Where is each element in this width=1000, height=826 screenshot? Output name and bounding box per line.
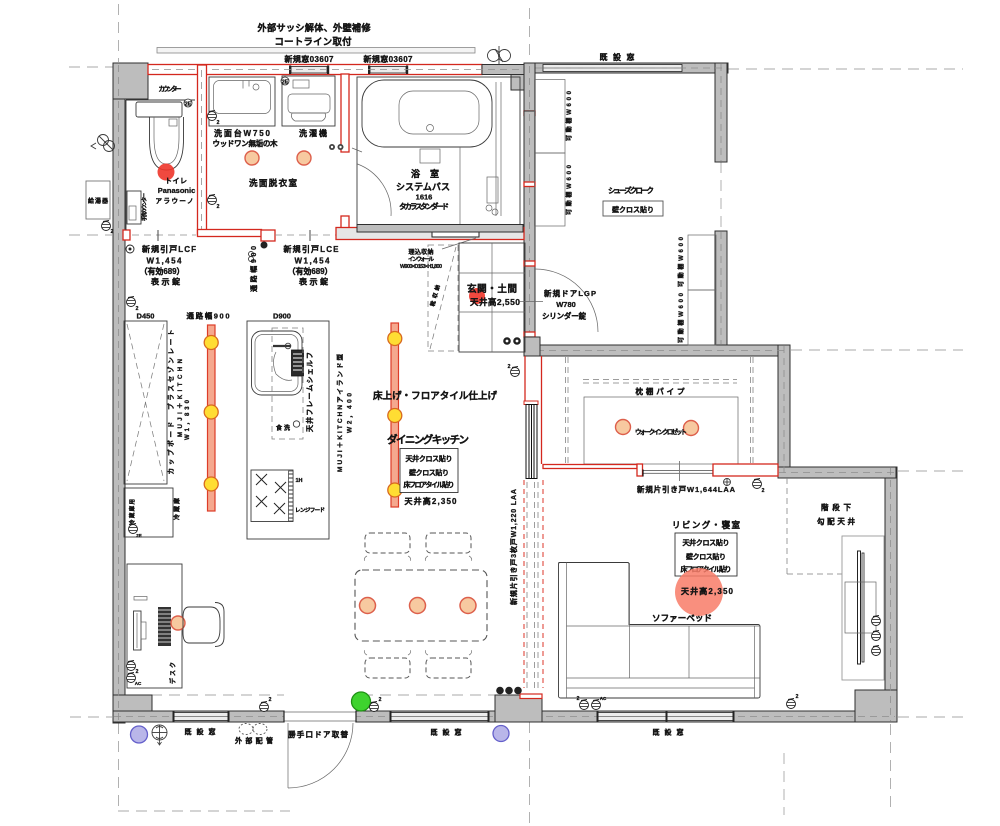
svg-text:（有効689）: （有効689）	[288, 266, 333, 276]
svg-text:W1,454: W1,454	[147, 257, 183, 266]
svg-text:D900: D900	[273, 312, 291, 321]
svg-text:コートライン取付: コートライン取付	[275, 36, 353, 47]
svg-text:アラウーノ: アラウーノ	[156, 197, 194, 205]
svg-text:W900×D153×H1,800: W900×D153×H1,800	[400, 264, 442, 270]
svg-text:既設窓: 既設窓	[185, 727, 216, 736]
svg-text:外部サッシ解体、外壁補修: 外部サッシ解体、外壁補修	[257, 22, 372, 33]
svg-text:2: 2	[379, 697, 382, 703]
svg-text:MUJI＋KITCHN: MUJI＋KITCHN	[177, 359, 184, 437]
svg-text:新規片引き戸W1,644LAA: 新規片引き戸W1,644LAA	[637, 484, 736, 494]
svg-text:2: 2	[796, 694, 799, 700]
svg-text:ウォークインクロゼット: ウォークインクロゼット	[635, 427, 687, 436]
svg-text:冷蔵庫: 冷蔵庫	[173, 498, 181, 520]
svg-text:2: 2	[577, 696, 580, 702]
svg-text:新規引戸LCE: 新規引戸LCE	[284, 244, 340, 254]
svg-text:新規窓03607: 新規窓03607	[285, 54, 335, 64]
svg-text:D450: D450	[137, 312, 155, 321]
svg-text:2: 2	[269, 697, 272, 703]
svg-text:AC: AC	[135, 681, 142, 686]
svg-text:ソファーベッド: ソファーベッド	[652, 613, 712, 623]
svg-text:2: 2	[217, 120, 220, 126]
svg-text:2: 2	[217, 204, 220, 210]
svg-text:天井クロス貼り: 天井クロス貼り	[683, 538, 730, 547]
svg-text:インウォール: インウォール	[408, 255, 434, 263]
svg-text:既設窓: 既設窓	[431, 728, 462, 737]
svg-text:レンジフード: レンジフード	[295, 507, 325, 514]
svg-text:天井高2,350: 天井高2,350	[681, 586, 734, 596]
svg-text:表示錠: 表示錠	[150, 277, 181, 287]
svg-text:1616: 1616	[416, 193, 433, 202]
svg-text:床フロアタイル貼り: 床フロアタイル貼り	[404, 480, 455, 489]
svg-text:2E: 2E	[185, 102, 192, 108]
svg-text:新規片引き戸3枚戸W1,220 LAA: 新規片引き戸3枚戸W1,220 LAA	[509, 489, 518, 605]
svg-text:AC: AC	[600, 696, 607, 701]
svg-text:通路幅900: 通路幅900	[187, 311, 230, 321]
svg-text:通路幅900: 通路幅900	[249, 246, 258, 292]
svg-text:タカラスタンダード: タカラスタンダード	[399, 201, 449, 211]
svg-text:天井高2,550: 天井高2,550	[470, 297, 520, 307]
svg-text:デスク: デスク	[169, 662, 177, 684]
svg-text:1H: 1H	[295, 478, 302, 484]
svg-text:理込収納: 理込収納	[409, 248, 434, 256]
svg-text:床上げ・フロアタイル仕上げ: 床上げ・フロアタイル仕上げ	[373, 390, 497, 402]
svg-text:新規窓03607: 新規窓03607	[364, 54, 414, 64]
svg-text:Panasonic: Panasonic	[158, 186, 196, 195]
svg-text:MUJI＋KITCHNアイランド型: MUJI＋KITCHNアイランド型	[335, 354, 344, 473]
svg-text:カウンター: カウンター	[159, 84, 182, 93]
svg-text:表示錠: 表示錠	[298, 277, 329, 287]
svg-text:シリンダー錠: シリンダー錠	[542, 311, 587, 321]
svg-text:洗濯機: 洗濯機	[299, 128, 327, 138]
svg-text:W780: W780	[556, 300, 576, 309]
svg-text:トイレ: トイレ	[165, 177, 187, 185]
svg-text:既設窓: 既設窓	[600, 52, 635, 62]
svg-text:階段下: 階段下	[821, 502, 852, 512]
svg-text:2: 2	[136, 669, 139, 675]
svg-text:新規引戸LCF: 新規引戸LCF	[142, 244, 196, 254]
svg-text:新規ドアLGP: 新規ドアLGP	[544, 288, 596, 298]
svg-text:W1,454: W1,454	[295, 257, 331, 266]
svg-text:壁クロス貼り: 壁クロス貼り	[686, 552, 726, 561]
svg-text:手洗カウンター: 手洗カウンター	[141, 193, 148, 221]
svg-text:2: 2	[111, 229, 114, 235]
svg-text:洗面脱衣室: 洗面脱衣室	[249, 178, 297, 188]
svg-text:天井高2,350: 天井高2,350	[405, 496, 458, 506]
svg-text:ウッドワン無垢の木: ウッドワン無垢の木	[213, 138, 279, 148]
svg-text:2E: 2E	[136, 533, 142, 538]
svg-text:2: 2	[762, 488, 765, 494]
svg-text:2: 2	[508, 364, 511, 370]
svg-text:既設窓: 既設窓	[653, 728, 684, 737]
svg-text:天井クロス貼り: 天井クロス貼り	[406, 454, 453, 463]
svg-text:シューズクローク: シューズクローク	[608, 185, 654, 195]
svg-text:壁クロス貼り: 壁クロス貼り	[409, 468, 449, 477]
svg-text:天井フレームシェルフ: 天井フレームシェルフ	[305, 352, 314, 432]
svg-text:壁クロス貼り: 壁クロス貼り	[612, 205, 654, 214]
svg-text:枕棚パイプ: 枕棚パイプ	[636, 386, 686, 396]
svg-text:玄関・土間: 玄関・土間	[467, 283, 517, 295]
svg-text:（有効689）: （有効689）	[140, 266, 185, 276]
svg-text:給湯器: 給湯器	[88, 197, 109, 205]
svg-text:ダイニングキッチン: ダイニングキッチン	[387, 433, 469, 446]
svg-text:冷蔵庫用: 冷蔵庫用	[128, 499, 136, 525]
svg-text:システムバス: システムバス	[396, 182, 450, 192]
svg-text:2E: 2E	[282, 80, 289, 86]
